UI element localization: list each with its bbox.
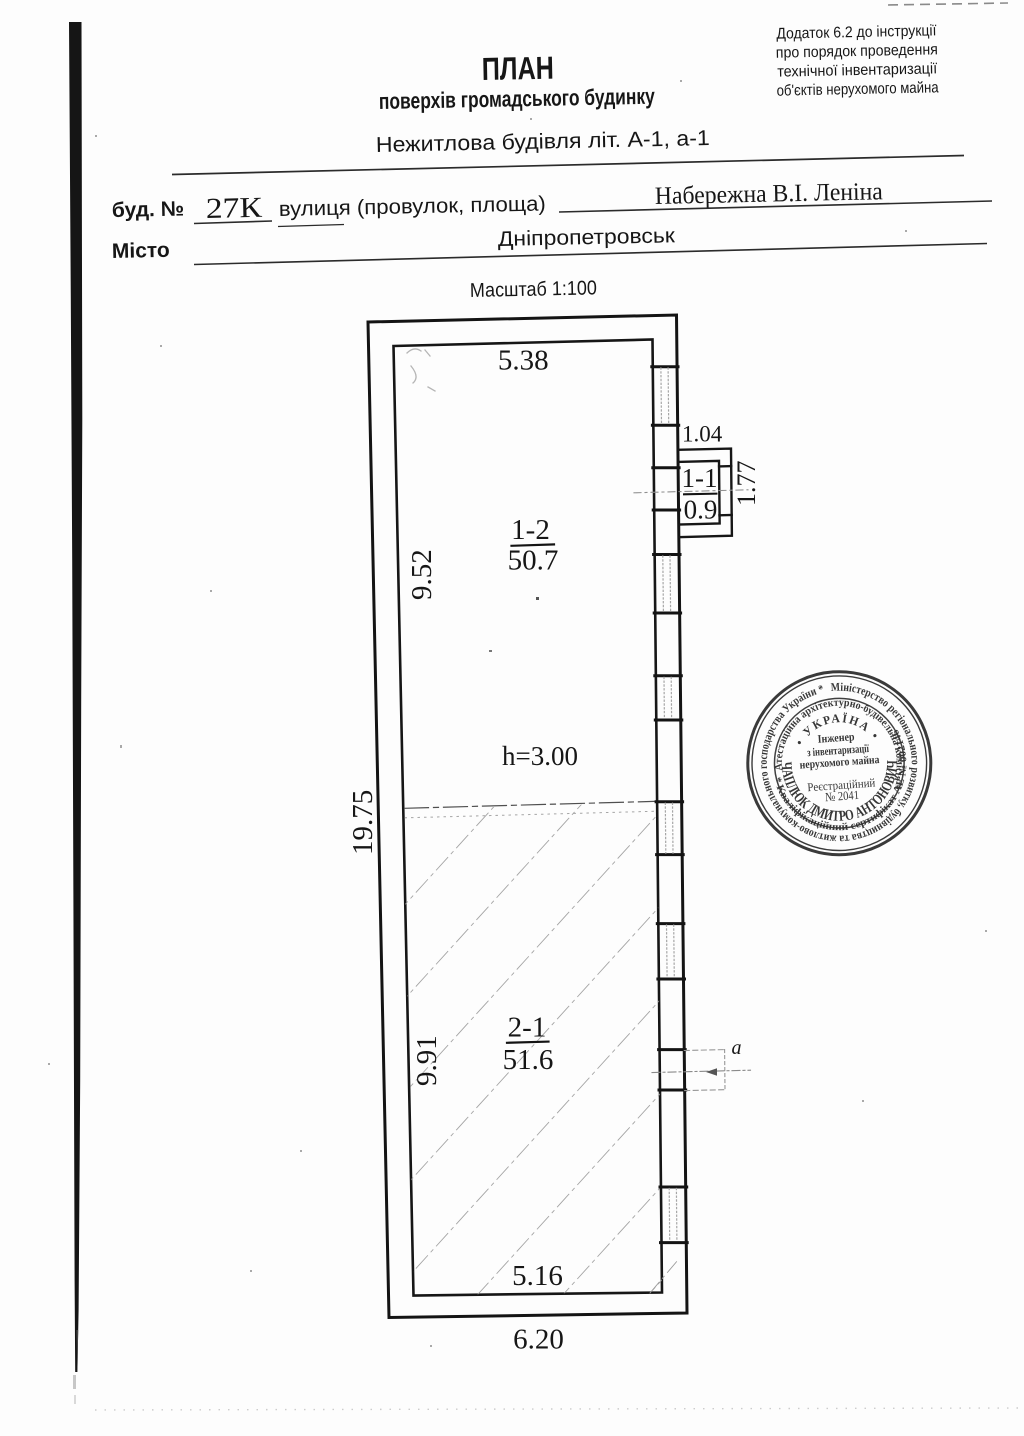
svg-text:Дніпропетровськ: Дніпропетровськ [498, 224, 676, 251]
svg-text:буд. №: буд. № [112, 197, 185, 222]
svg-text:1-2: 1-2 [511, 514, 550, 546]
svg-text:поверхів громадського будинку: поверхів громадського будинку [379, 84, 656, 114]
svg-text:19.75: 19.75 [347, 790, 379, 855]
svg-text:1.04: 1.04 [682, 422, 723, 447]
svg-text:Місто: Місто [112, 239, 170, 263]
svg-text:5.16: 5.16 [512, 1260, 563, 1292]
svg-text:27К: 27К [205, 192, 262, 225]
svg-text:0.9: 0.9 [684, 495, 718, 525]
svg-text:5.38: 5.38 [498, 345, 549, 377]
svg-text:9.91: 9.91 [411, 1035, 443, 1086]
svg-text:51.6: 51.6 [503, 1044, 554, 1076]
svg-text:про порядок проведення: про порядок проведення [776, 41, 938, 61]
svg-text:1.77: 1.77 [732, 461, 761, 507]
svg-text:Нежитлова будівля літ. А-1, а-: Нежитлова будівля літ. А-1, а-1 [376, 126, 710, 157]
svg-text:50.7: 50.7 [508, 545, 559, 577]
svg-text:ПЛАН: ПЛАН [481, 50, 554, 87]
svg-text:1-1: 1-1 [682, 463, 718, 493]
svg-text:h=3.00: h=3.00 [502, 741, 578, 771]
svg-text:2-1: 2-1 [508, 1012, 547, 1044]
svg-text:Масштаб 1:100: Масштаб 1:100 [470, 277, 597, 302]
svg-text:технічної інвентаризації: технічної інвентаризації [777, 60, 938, 80]
svg-text:9.52: 9.52 [406, 549, 438, 600]
svg-text:об'єктів нерухомого майна: об'єктів нерухомого майна [776, 79, 939, 99]
svg-text:вулиця (провулок, площа): вулиця (провулок, площа) [279, 192, 546, 221]
svg-text:а: а [732, 1037, 742, 1059]
svg-text:№ 2041: № 2041 [825, 788, 860, 804]
svg-text:Додаток 6.2 до інструкції: Додаток 6.2 до інструкції [776, 22, 937, 42]
svg-text:6.20: 6.20 [513, 1324, 564, 1356]
